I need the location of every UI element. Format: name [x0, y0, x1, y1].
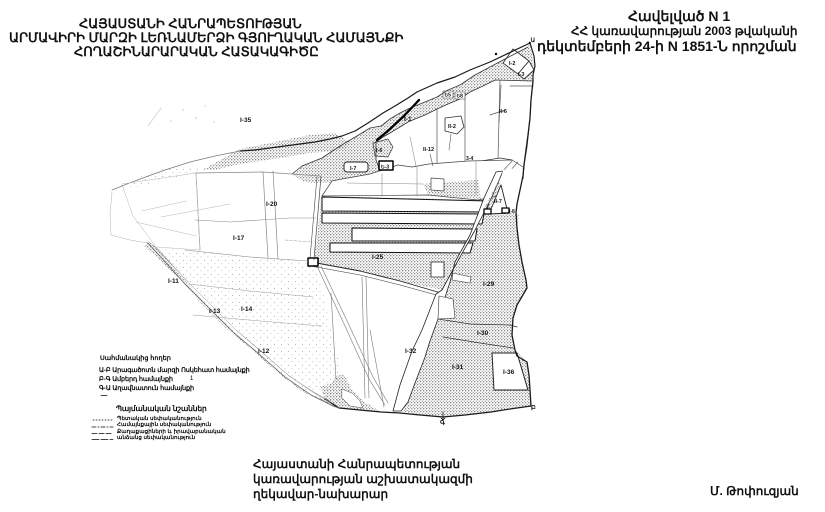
svg-text:I-3: I-3 [518, 72, 524, 78]
svg-text:I-32: I-32 [405, 348, 417, 355]
svg-text:I-13: I-13 [209, 308, 221, 315]
svg-text:I-11: I-11 [168, 278, 179, 285]
svg-text:I-12: I-12 [258, 348, 270, 355]
svg-text:I-1: I-1 [404, 116, 412, 123]
svg-text:I-7: I-7 [350, 166, 356, 172]
svg-text:Ա: Ա [531, 37, 536, 44]
svg-text:I-31: I-31 [452, 364, 464, 371]
svg-text:I-35: I-35 [240, 117, 252, 124]
svg-text:I-20: I-20 [266, 201, 278, 208]
svg-text:II-7: II-7 [494, 199, 502, 205]
svg-text:3-4: 3-4 [466, 156, 473, 162]
svg-text:II-12: II-12 [423, 147, 434, 153]
svg-text:Ե5: Ե5 [445, 93, 452, 99]
svg-text:I-17: I-17 [233, 235, 245, 242]
svg-text:I-29: I-29 [483, 281, 495, 288]
svg-text:I-36: I-36 [503, 369, 515, 376]
svg-text:I-25: I-25 [372, 254, 384, 261]
svg-text:I-30: I-30 [477, 330, 489, 337]
svg-text:II-2: II-2 [448, 124, 456, 130]
svg-text:I-2: I-2 [509, 61, 515, 67]
svg-text:I-8: I-8 [509, 209, 515, 215]
svg-text:I-6: I-6 [376, 148, 382, 154]
svg-text:II-6: II-6 [499, 109, 507, 115]
svg-text:Բ: Բ [531, 404, 536, 412]
svg-text:I-14: I-14 [241, 306, 253, 313]
svg-text:Ե-3: Ե-3 [381, 165, 389, 171]
svg-text:Ե8: Ե8 [457, 94, 464, 100]
